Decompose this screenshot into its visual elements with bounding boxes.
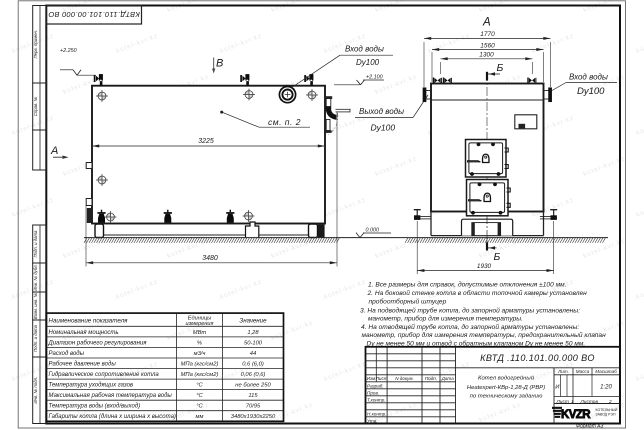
svg-text:по техническому заданию: по техническому заданию (470, 393, 543, 399)
svg-text:МПа (кгс/см2): МПа (кгс/см2) (181, 361, 219, 367)
svg-text:КВТД .110.101.00.000 ВО: КВТД .110.101.00.000 ВО (480, 353, 595, 363)
svg-text:Б: Б (494, 251, 501, 263)
svg-text:+2.250: +2.250 (60, 48, 77, 54)
svg-text:Рабочее давление воды: Рабочее давление воды (49, 361, 117, 367)
svg-text:не более 250: не более 250 (235, 383, 271, 389)
svg-text:Перв. примен.: Перв. примен. (33, 30, 38, 59)
svg-text:Утв.: Утв. (367, 418, 377, 423)
svg-text:Значение: Значение (239, 317, 267, 324)
svg-text:Максимальная рабочая температу: Максимальная рабочая температура воды (49, 393, 173, 399)
svg-text:Подп. и дата: Подп. и дата (33, 230, 38, 258)
svg-text:Dy100: Dy100 (356, 58, 380, 67)
svg-text:Габариты котла (длина х ширина: Габариты котла (длина х ширина х высота) (49, 414, 176, 420)
svg-text:1,28: 1,28 (247, 330, 259, 336)
svg-text:3. На подводящей трубе котла,: 3. На подводящей трубе котла, до запорно… (360, 307, 580, 315)
svg-text:1: 1 (571, 399, 574, 405)
svg-text:А: А (50, 145, 58, 157)
svg-text:Подп.: Подп. (425, 376, 437, 381)
svg-text:N докум.: N докум. (395, 376, 414, 381)
svg-text:В: В (216, 58, 223, 70)
svg-text:МВт: МВт (193, 330, 207, 336)
svg-text:Номинальная мощность: Номинальная мощность (49, 330, 119, 336)
svg-text:°С: °С (196, 393, 203, 399)
svg-text:Масштаб: Масштаб (595, 369, 617, 374)
svg-text:44: 44 (250, 351, 256, 357)
svg-text:°С: °С (196, 404, 203, 410)
svg-text:А: А (482, 17, 491, 29)
svg-text:Температура воды (вход/выход): Температура воды (вход/выход) (49, 404, 141, 410)
svg-text:МПа (кгс/см2): МПа (кгс/см2) (181, 372, 219, 378)
svg-text:70/95: 70/95 (246, 404, 261, 410)
svg-text:1. Все размеры для справок, д: 1. Все размеры для справок, допустимые о… (368, 281, 567, 289)
svg-text:пробоотборный штуцер: пробоотборный штуцер (369, 298, 447, 306)
svg-text:KVZR: KVZR (561, 409, 591, 421)
svg-text:Расход воды: Расход воды (49, 351, 85, 357)
svg-text:Выход воды: Выход воды (359, 107, 404, 116)
svg-text:Листов: Листов (580, 399, 599, 405)
svg-text:0,06 (0,6): 0,06 (0,6) (241, 372, 266, 378)
svg-text:Лист: Лист (375, 376, 388, 381)
svg-text:Разраб.: Разраб. (367, 383, 384, 388)
svg-text:3225: 3225 (198, 138, 214, 145)
svg-text:ЗАВОД РЭП: ЗАВОД РЭП (596, 412, 617, 416)
svg-text:Т.контр.: Т.контр. (367, 397, 386, 402)
svg-text:Вход воды: Вход воды (569, 73, 608, 82)
svg-text:0,6 (6,0): 0,6 (6,0) (242, 361, 264, 367)
svg-text:115: 115 (248, 393, 258, 399)
svg-text:Вход воды: Вход воды (345, 45, 384, 54)
svg-text:манометр, прибор для измерения: манометр, прибор для измерения температу… (368, 315, 523, 323)
svg-text:КВТД.110.101.00.000 ВО: КВТД.110.101.00.000 ВО (48, 10, 140, 19)
svg-text:Дата: Дата (441, 376, 455, 381)
svg-text:Диапазон рабочего регулировани: Диапазон рабочего регулирования (48, 340, 148, 346)
svg-text:Heatexpert-КВр-1,28-Д (РВР): Heatexpert-КВр-1,28-Д (РВР) (467, 385, 545, 391)
svg-text:1300: 1300 (479, 52, 494, 59)
svg-text:°С: °С (196, 383, 203, 389)
svg-text:Инв. № подл.: Инв. № подл. (33, 377, 38, 404)
svg-text:Н.контр.: Н.контр. (367, 411, 386, 416)
svg-text:измерения: измерения (186, 321, 214, 327)
svg-text:Справ. №: Справ. № (33, 96, 38, 116)
svg-text:3480: 3480 (202, 255, 218, 262)
svg-text:Dy100: Dy100 (577, 86, 605, 97)
svg-text:1:20: 1:20 (600, 385, 612, 391)
svg-text:50-100: 50-100 (244, 340, 263, 346)
svg-text:м3/ч: м3/ч (194, 351, 206, 357)
svg-text:Котел водогрейный: Котел водогрейный (478, 374, 535, 381)
svg-text:Наименование показателя: Наименование показателя (49, 317, 129, 324)
svg-text:Формат А3: Формат А3 (576, 424, 604, 430)
svg-text:Масса: Масса (576, 369, 590, 374)
svg-text:Изм: Изм (367, 376, 376, 381)
svg-text:1930: 1930 (477, 263, 492, 270)
svg-text:см. п. 2: см. п. 2 (268, 117, 301, 127)
svg-text:манометр, прибор для измерения: манометр, прибор для измерения температу… (362, 331, 607, 339)
svg-text:3480х1930х2250: 3480х1930х2250 (231, 414, 276, 420)
svg-text:Температура уходящих газов: Температура уходящих газов (49, 383, 134, 389)
svg-text:Пров.: Пров. (367, 390, 379, 395)
svg-text:1770: 1770 (480, 31, 495, 38)
svg-text:Б: Б (497, 62, 504, 74)
svg-text:4. На отводящей трубе котла,: 4. На отводящей трубе котла, до запорной… (361, 323, 579, 331)
svg-text:КОТЕЛЬНЫЙ: КОТЕЛЬНЫЙ (596, 408, 618, 412)
svg-text:Гидравлическое сопротивление к: Гидравлическое сопротивление котла (49, 372, 160, 378)
svg-text:Инв. № дубл.: Инв. № дубл. (33, 264, 38, 290)
svg-text:Лит.: Лит. (557, 369, 569, 374)
svg-text:%: % (197, 340, 202, 346)
svg-text:1560: 1560 (480, 42, 495, 49)
svg-text:Dy100: Dy100 (371, 123, 396, 133)
svg-text:Подп. и дата: Подп. и дата (33, 324, 38, 352)
svg-text:Взам. инв. №: Взам. инв. № (33, 292, 38, 319)
svg-text:мм: мм (196, 414, 204, 420)
svg-text:2. На боковой стенке котла в: 2. На боковой стенке котла в области топ… (367, 289, 588, 297)
svg-text:Лист: Лист (556, 399, 569, 405)
svg-text:2: 2 (608, 399, 612, 405)
